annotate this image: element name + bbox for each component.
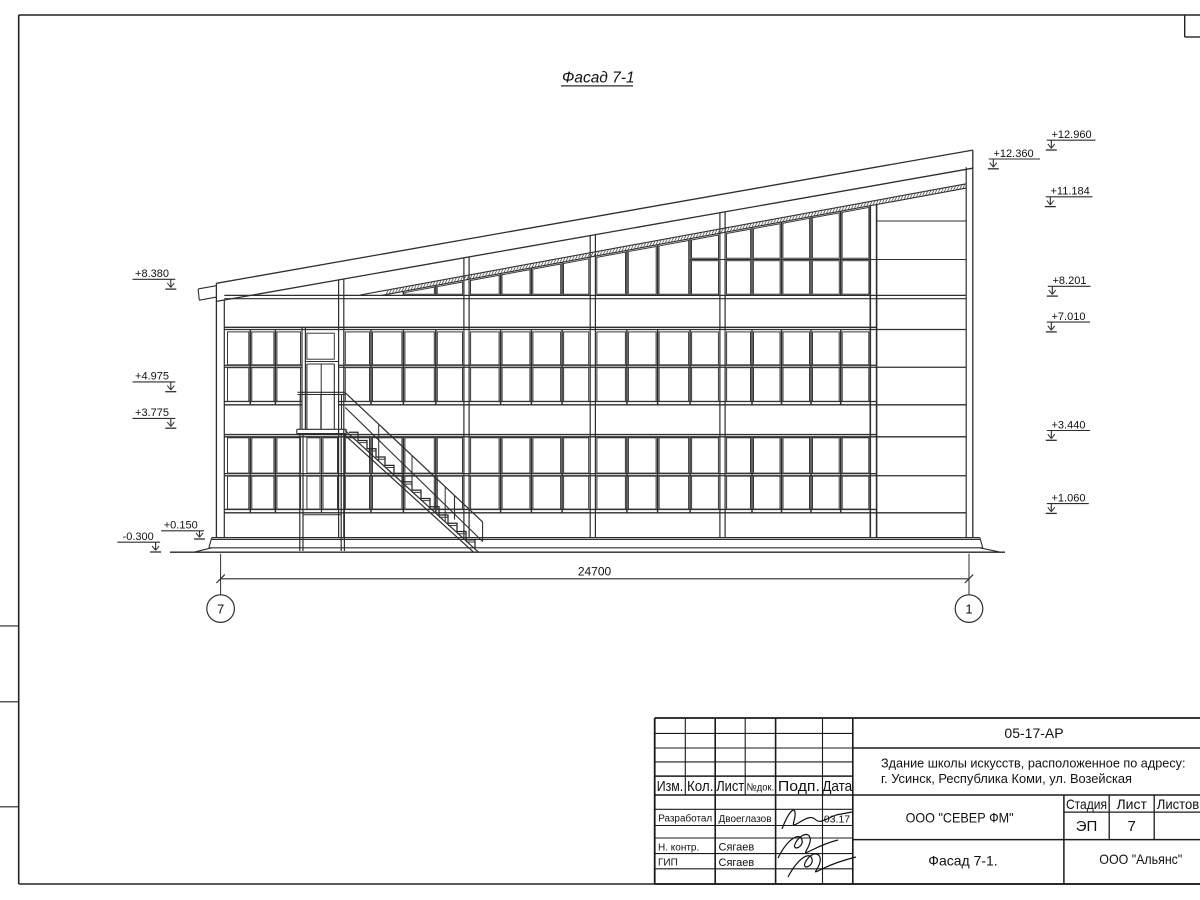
svg-text:ГИП: ГИП	[658, 858, 678, 869]
svg-text:ЭП: ЭП	[1076, 818, 1098, 835]
svg-text:Дата: Дата	[822, 778, 853, 795]
svg-text:+4.975: +4.975	[135, 371, 169, 383]
svg-text:+8.201: +8.201	[1053, 275, 1087, 287]
svg-text:Фасад 7-1.: Фасад 7-1.	[928, 853, 997, 869]
svg-text:+3.775: +3.775	[135, 407, 169, 419]
svg-text:+8.380: +8.380	[135, 268, 169, 280]
svg-text:Сягаев: Сягаев	[719, 857, 755, 869]
svg-text:ООО "Альянс": ООО "Альянс"	[1099, 851, 1182, 867]
svg-text:Разработал: Разработал	[658, 813, 712, 825]
svg-text:7: 7	[217, 601, 224, 616]
svg-text:+12.960: +12.960	[1052, 129, 1092, 141]
svg-text:Н. контр.: Н. контр.	[658, 842, 699, 853]
svg-text:+12.360: +12.360	[994, 148, 1034, 160]
svg-text:1: 1	[965, 601, 972, 616]
svg-text:+11.184: +11.184	[1051, 186, 1090, 198]
svg-text:Здание школы искусств, располо: Здание школы искусств, расположенное по …	[881, 756, 1186, 771]
svg-text:Сягаев: Сягаев	[719, 842, 755, 854]
svg-text:+7.010: +7.010	[1052, 311, 1086, 323]
svg-text:Двоеглазов: Двоеглазов	[719, 813, 772, 825]
svg-text:+0.150: +0.150	[164, 520, 198, 532]
svg-text:24700: 24700	[578, 564, 612, 578]
svg-text:№док.: №док.	[747, 782, 775, 794]
svg-text:7: 7	[1128, 818, 1136, 835]
svg-text:ООО "СЕВЕР ФМ": ООО "СЕВЕР ФМ"	[906, 809, 1014, 825]
svg-text:Фасад 7-1: Фасад 7-1	[562, 70, 635, 87]
svg-text:-0.300: -0.300	[123, 531, 154, 543]
svg-text:Изм.: Изм.	[657, 778, 684, 795]
svg-text:Подп.: Подп.	[778, 778, 820, 795]
svg-text:+1.060: +1.060	[1052, 492, 1086, 504]
svg-text:Лист: Лист	[1116, 796, 1147, 812]
svg-text:Стадия: Стадия	[1066, 796, 1107, 812]
svg-text:Листов: Листов	[1157, 796, 1200, 812]
svg-text:05-17-АР: 05-17-АР	[1004, 725, 1063, 741]
svg-text:Кол.: Кол.	[687, 778, 714, 795]
svg-text:г. Усинск, Республика Коми, ул: г. Усинск, Республика Коми, ул. Возейска…	[881, 771, 1132, 786]
svg-text:Лист: Лист	[716, 778, 744, 795]
svg-text:+3.440: +3.440	[1052, 419, 1086, 431]
